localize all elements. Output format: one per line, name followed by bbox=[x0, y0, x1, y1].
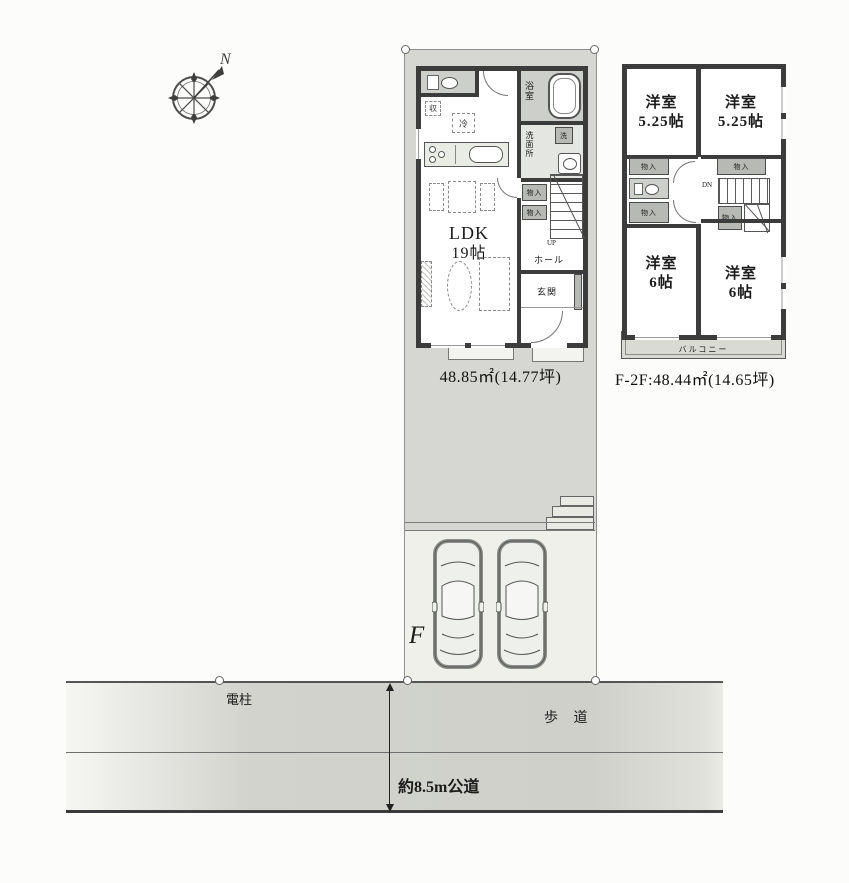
room-size: 6帖 bbox=[729, 284, 754, 303]
floor2-closet-nw: 物入 bbox=[629, 158, 669, 175]
floor1-washroom: 洗面所 洗 bbox=[521, 125, 583, 178]
site-step bbox=[546, 517, 594, 530]
block-label: F bbox=[409, 622, 424, 650]
floor2-toilet-room bbox=[629, 178, 669, 199]
room-size: 6帖 bbox=[649, 274, 674, 293]
toilet-tank-icon bbox=[634, 183, 643, 195]
toilet-bowl-icon bbox=[645, 184, 659, 195]
stairs-winder bbox=[744, 204, 770, 232]
stove-burner-icon bbox=[429, 146, 436, 153]
kitchen-sink-icon bbox=[469, 146, 503, 163]
toilet-bowl-icon bbox=[441, 77, 458, 89]
stairs-1f bbox=[550, 174, 583, 239]
washroom-label: 洗面所 bbox=[524, 131, 535, 158]
ldk-name: LDK bbox=[449, 222, 489, 245]
bathtub-icon bbox=[548, 73, 581, 119]
compass-north-label: N bbox=[219, 51, 232, 68]
hall-label: ホール bbox=[521, 253, 577, 266]
lot-divider-line bbox=[405, 522, 595, 523]
kitchen-counter bbox=[424, 142, 509, 167]
stove-burner-icon bbox=[438, 151, 445, 158]
sofa-outline bbox=[479, 257, 510, 311]
boundary-marker-icon bbox=[590, 45, 599, 54]
arrowhead-down-icon bbox=[386, 804, 394, 812]
site-step bbox=[552, 506, 594, 517]
car-top-view bbox=[432, 538, 484, 670]
road-width-label: 約8.5m公道 bbox=[398, 773, 479, 797]
chair-outline bbox=[429, 183, 444, 211]
floor2-closet-c: 物入 bbox=[718, 206, 742, 230]
tv-board-outline bbox=[421, 261, 432, 307]
arrowhead-up-icon bbox=[386, 683, 394, 691]
utility-pole-marker-icon bbox=[215, 676, 224, 685]
stairs-dn-label: DN bbox=[702, 181, 712, 189]
door-arc-icon bbox=[497, 178, 517, 198]
counter-divider bbox=[455, 145, 456, 164]
floor1-area-label: 48.85㎡(14.77坪) bbox=[404, 363, 597, 387]
entrance-porch bbox=[532, 346, 584, 362]
floor1-closet-a: 物入 bbox=[522, 184, 547, 201]
door-arc-icon bbox=[673, 200, 696, 223]
boundary-marker-icon bbox=[403, 676, 412, 685]
window bbox=[778, 289, 786, 309]
door-arc-icon bbox=[673, 161, 695, 183]
floor1-storage: 収 bbox=[425, 101, 441, 116]
entrance-label: 玄関 bbox=[521, 285, 573, 298]
boundary-marker-icon bbox=[591, 676, 600, 685]
room-se-label: 洋室 6帖 bbox=[701, 249, 781, 319]
room-name: 洋室 bbox=[645, 94, 677, 113]
road-center-line bbox=[66, 752, 723, 753]
window bbox=[778, 257, 786, 283]
road: 電柱 歩 道 約8.5m公道 bbox=[66, 681, 723, 813]
room-name: 洋室 bbox=[725, 265, 757, 284]
shoe-cabinet bbox=[574, 274, 582, 310]
compass-icon: N bbox=[156, 46, 244, 134]
door-arc-icon bbox=[483, 71, 508, 96]
stove-burner-icon bbox=[429, 156, 436, 163]
room-nw-label: 洋室 5.25帖 bbox=[627, 77, 696, 149]
wall bbox=[701, 219, 781, 223]
floor1-fridge: 冷 bbox=[452, 113, 475, 133]
dining-table-outline bbox=[448, 181, 476, 213]
floor2-closet-w: 物入 bbox=[629, 202, 669, 223]
car-top-view bbox=[496, 538, 548, 670]
rug-outline bbox=[447, 261, 472, 311]
chair-outline bbox=[480, 183, 495, 211]
boundary-marker-icon bbox=[401, 45, 410, 54]
window bbox=[471, 343, 505, 348]
stairs-up-label: UP bbox=[547, 239, 556, 247]
bathtub-inner bbox=[553, 78, 576, 114]
basin-bowl-icon bbox=[563, 158, 577, 170]
floor1-toilet-room bbox=[421, 71, 479, 97]
washer-space: 洗 bbox=[555, 127, 573, 144]
floor1-bathroom: 浴室 bbox=[521, 71, 583, 121]
window bbox=[416, 129, 421, 159]
genkan-step-line bbox=[521, 307, 583, 308]
wall bbox=[627, 224, 696, 228]
window bbox=[635, 335, 679, 340]
toilet-tank-icon bbox=[427, 75, 439, 90]
utility-pole-label: 電柱 bbox=[226, 689, 252, 708]
floor2-plan: 洋室 5.25帖 洋室 5.25帖 物入 物入 物入 DN 物入 洋室 6帖 bbox=[622, 64, 786, 340]
room-sw-label: 洋室 6帖 bbox=[627, 239, 696, 309]
entrance-door-gap bbox=[531, 343, 567, 348]
stairs-2f bbox=[718, 178, 770, 204]
window bbox=[778, 119, 786, 139]
floor1-closet-b: 物入 bbox=[522, 205, 547, 220]
terrace-step bbox=[448, 346, 514, 360]
floor2-area-label: F-2F:48.44㎡(14.65坪) bbox=[615, 366, 790, 390]
window bbox=[778, 87, 786, 113]
room-size: 5.25帖 bbox=[718, 113, 764, 132]
road-width-arrow bbox=[389, 690, 390, 806]
room-size: 5.25帖 bbox=[638, 113, 684, 132]
entrance-door-arc-icon bbox=[531, 311, 563, 343]
window bbox=[717, 335, 771, 340]
bathroom-label: 浴室 bbox=[523, 81, 536, 101]
floor1-plan: 収 冷 浴室 洗面所 洗 物入 物入 bbox=[416, 66, 588, 348]
floorplan-sheet: N 収 冷 浴室 洗面所 洗 bbox=[0, 0, 849, 883]
room-ne-label: 洋室 5.25帖 bbox=[701, 77, 781, 149]
sidewalk-label: 歩 道 bbox=[544, 707, 594, 727]
washbasin-icon bbox=[558, 153, 581, 174]
room-name: 洋室 bbox=[725, 94, 757, 113]
floor2-closet-ne: 物入 bbox=[717, 158, 766, 175]
window bbox=[431, 343, 465, 348]
stairs-diagonal bbox=[553, 175, 585, 239]
balcony-label: バルコニー bbox=[622, 344, 785, 355]
room-name: 洋室 bbox=[645, 255, 677, 274]
site-step bbox=[560, 496, 594, 506]
